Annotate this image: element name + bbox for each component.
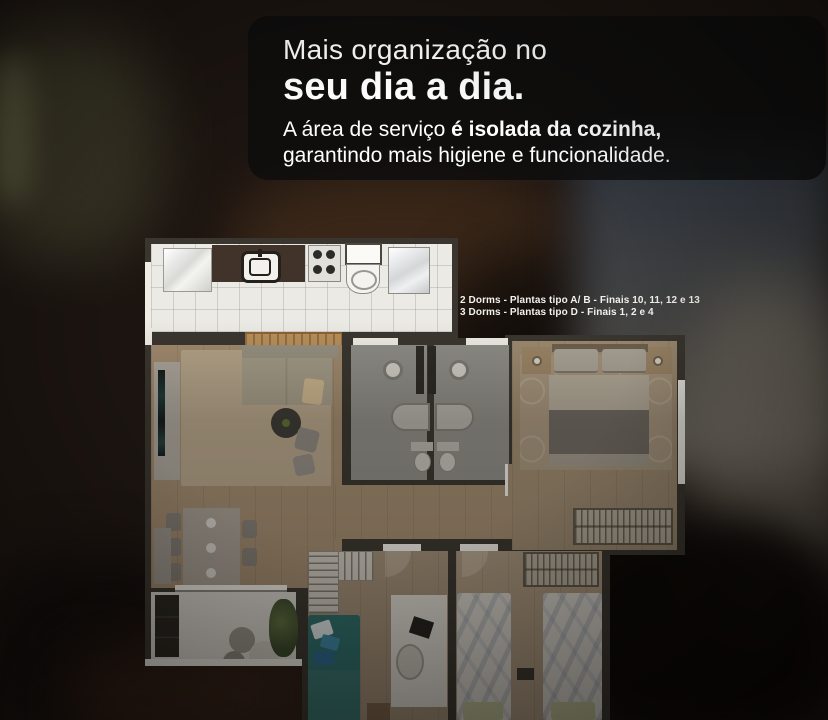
service-tank: [345, 243, 382, 265]
desk: [391, 595, 447, 707]
fridge: [163, 248, 212, 292]
burner-icon: [326, 250, 335, 259]
sideboard: [154, 528, 171, 584]
bathroom-2-sink: [449, 360, 469, 380]
room-bedroom-2: [456, 551, 602, 720]
burner-icon: [313, 265, 322, 274]
room-kitchen: [151, 244, 452, 332]
bathroom-1-door: [353, 338, 398, 345]
balcony-railing: [145, 659, 302, 666]
pouf: [292, 453, 316, 477]
bathroom-divider-doors: [416, 346, 424, 394]
balcony-cabinet: [155, 595, 179, 657]
kitchen-counter: [212, 245, 305, 282]
sofa-back: [242, 345, 338, 358]
master-door-leaf: [505, 464, 508, 496]
bathroom-2-toilet-bowl: [439, 452, 456, 472]
burner-icon: [326, 265, 335, 274]
laundry-basin: [351, 270, 377, 290]
master-wardrobe: [573, 508, 673, 545]
lamp-icon: [532, 356, 542, 366]
bed-pillow: [551, 702, 595, 720]
bg-olive-strip: [0, 55, 32, 205]
dining-chair: [242, 548, 257, 566]
kitchen-sink: [241, 251, 281, 283]
bed-blanket: [549, 410, 649, 454]
room-bedroom-3: [308, 551, 448, 720]
sink-faucet-icon: [258, 249, 262, 257]
tv-panel: [154, 362, 180, 480]
desk-chair: [396, 644, 424, 680]
sofa-cushion: [302, 378, 325, 405]
lamp-icon: [653, 356, 663, 366]
washer: [388, 247, 430, 294]
bathroom-divider-doors: [428, 346, 436, 394]
single-bed-a: [457, 593, 511, 720]
closet-rail-vertical: [308, 551, 339, 614]
floor-item: [517, 668, 534, 680]
headline-card: Mais organização no seu dia a dia. A áre…: [248, 16, 826, 180]
place-setting: [206, 568, 216, 578]
bedroom-2-door: [460, 544, 498, 551]
bed-pillow: [320, 634, 341, 651]
bathroom-2-door: [466, 338, 508, 345]
bathroom-2-toilet: [437, 442, 459, 451]
burner-icon: [313, 250, 322, 259]
caption-line-2: 3 Dorms - Plantas tipo D - Finais 1, 2 e…: [460, 307, 700, 319]
tv-icon: [158, 370, 165, 456]
nightstand: [522, 347, 551, 374]
balcony-sliding-door: [175, 585, 287, 592]
bedroom-3-door: [383, 544, 421, 551]
room-corridor: [335, 485, 512, 539]
bathroom-1-toilet: [411, 442, 433, 451]
marketing-slide: 2 Dorms - Plantas tipo A/ B - Finais 10,…: [0, 0, 828, 720]
headline-bold: seu dia a dia.: [283, 66, 806, 108]
place-setting: [206, 518, 216, 528]
dining-table: [183, 508, 240, 588]
single-bed-teal: [308, 615, 360, 720]
room-master-bedroom: [512, 341, 677, 550]
kitchen-side-door: [145, 328, 152, 345]
laptop-icon: [409, 616, 434, 639]
body-bold: é isolada da cozinha,: [451, 118, 661, 141]
dining-chair: [242, 520, 257, 538]
headline-light: Mais organização no: [283, 34, 806, 66]
caption-line-1: 2 Dorms - Plantas tipo A/ B - Finais 10,…: [460, 295, 700, 307]
master-window: [678, 380, 685, 484]
bathroom-1-toilet-bowl: [414, 452, 431, 472]
bedside-table: [367, 703, 390, 720]
bed-pillow: [554, 349, 598, 373]
bed-pillow: [463, 702, 503, 720]
body-regular: A área de serviço: [283, 118, 451, 141]
body-line2: garantindo mais higiene e funcionalidade…: [283, 144, 671, 167]
plan-caption: 2 Dorms - Plantas tipo A/ B - Finais 10,…: [460, 295, 700, 319]
single-bed-b: [543, 593, 602, 720]
bed-sheet: [549, 375, 649, 415]
room-balcony: [151, 592, 296, 659]
bedroom-2-wardrobe: [523, 552, 599, 587]
bathroom-1-tub: [391, 403, 430, 431]
stove: [308, 245, 341, 282]
bathroom-1-sink: [383, 360, 403, 380]
bed-blanket: [308, 670, 360, 720]
place-setting: [206, 543, 216, 553]
bathroom-2-tub: [435, 403, 474, 431]
table-plant-icon: [282, 419, 290, 427]
sink-basin: [249, 258, 271, 276]
bed-pillow: [313, 650, 334, 666]
bed-foot: [549, 454, 649, 466]
bed-pillow: [602, 349, 646, 373]
balcony-plant-icon: [269, 599, 298, 657]
body-copy: A área de serviço é isolada da cozinha, …: [283, 117, 806, 169]
kitchen-window: [145, 262, 151, 330]
laundry-sink: [346, 264, 380, 294]
